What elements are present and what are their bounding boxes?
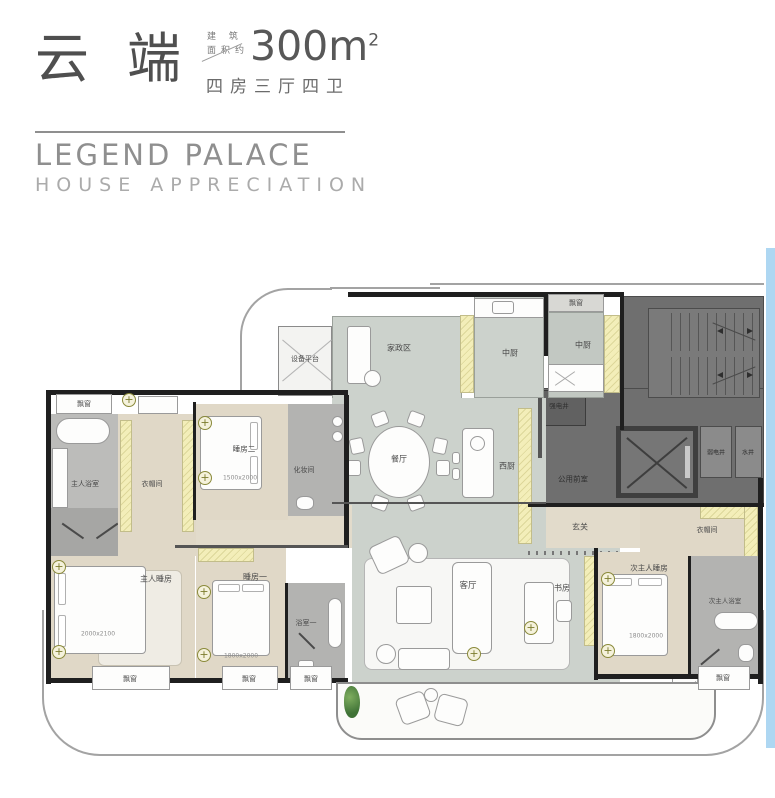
compass-symbol bbox=[198, 471, 212, 485]
wall-interior bbox=[332, 502, 546, 504]
dim-master-bedroom: 2000x2100 bbox=[81, 631, 115, 638]
label-bathroom-one: 浴室一 bbox=[296, 618, 317, 628]
label-makeup-room: 化妆间 bbox=[294, 465, 315, 475]
label-dining-room: 餐厅 bbox=[391, 454, 407, 465]
label-chinese-kitchen-left: 中厨 bbox=[502, 348, 518, 359]
brand-subtitle: HOUSE APPRECIATION bbox=[35, 174, 372, 196]
makeup-sink-2 bbox=[332, 431, 343, 442]
dim-bedroom-one: 1800x2000 bbox=[224, 653, 258, 660]
header-divider bbox=[35, 131, 345, 133]
wall-interior bbox=[175, 545, 348, 548]
wall bbox=[344, 395, 349, 548]
side-table-2 bbox=[376, 644, 396, 664]
compass-symbol bbox=[122, 393, 136, 407]
closet-column-2 bbox=[604, 315, 620, 393]
wall bbox=[620, 294, 624, 430]
compass-symbol bbox=[52, 645, 66, 659]
label-bay-window: 飘窗 bbox=[304, 674, 318, 684]
floorplan-page: 云端 建 筑 面积约 300m2 四房三厅四卫 LEGEND PALACE HO… bbox=[0, 0, 775, 798]
dim-second-master: 1800x2000 bbox=[629, 633, 663, 640]
bathtub-second-master bbox=[714, 612, 758, 630]
balcony-table bbox=[424, 688, 438, 702]
label-master-bathroom: 主人浴室 bbox=[71, 479, 99, 489]
label-housekeeping-area: 家政区 bbox=[387, 343, 411, 354]
page-title: 云端 bbox=[35, 14, 219, 93]
kitchen-sink bbox=[492, 301, 514, 314]
area-label-line1: 建 筑 bbox=[207, 30, 249, 44]
dining-chair bbox=[348, 437, 365, 456]
elevator-door bbox=[685, 446, 690, 478]
dining-chair bbox=[436, 460, 450, 476]
label-bay-window: 飘窗 bbox=[569, 298, 583, 308]
compass-symbol bbox=[52, 560, 66, 574]
label-west-kitchen: 西厨 bbox=[499, 461, 515, 472]
wall bbox=[688, 556, 691, 678]
pantry-cabinet-column bbox=[518, 408, 532, 544]
vanity-master bbox=[52, 448, 68, 508]
compass-symbol bbox=[601, 644, 615, 658]
bed-bedroom-one bbox=[212, 580, 270, 656]
makeup-toilet bbox=[296, 496, 314, 510]
stair-flight-lower bbox=[671, 357, 759, 395]
label-water-shaft: 水井 bbox=[742, 448, 754, 457]
label-equipment-platform: 设备平台 bbox=[291, 354, 319, 364]
wall bbox=[285, 583, 288, 680]
compass-symbol bbox=[467, 647, 481, 661]
balcony-plant bbox=[344, 686, 360, 718]
wardrobe-left bbox=[120, 420, 132, 532]
kitchen-counter-bottom bbox=[548, 364, 604, 392]
label-second-master-bedroom: 次主人睡房 bbox=[630, 563, 668, 574]
cloakroom-cabinet-top bbox=[138, 396, 178, 414]
compass-symbol bbox=[197, 585, 211, 599]
sofa-lounge bbox=[398, 648, 450, 670]
island-sink bbox=[470, 436, 485, 451]
wall bbox=[594, 548, 598, 680]
compass-symbol bbox=[524, 621, 538, 635]
compass-symbol bbox=[198, 416, 212, 430]
label-second-master-bathroom: 次主人浴室 bbox=[709, 595, 742, 605]
study-chair bbox=[556, 600, 572, 622]
wall bbox=[193, 402, 196, 520]
layout-description: 四房三厅四卫 bbox=[206, 72, 350, 97]
dining-chair bbox=[347, 460, 361, 476]
island-stool bbox=[452, 468, 460, 480]
staircase bbox=[648, 308, 760, 398]
bathtub-one bbox=[328, 598, 342, 648]
compass-symbol bbox=[601, 572, 615, 586]
label-cloakroom: 衣帽间 bbox=[142, 479, 163, 489]
bed-master bbox=[54, 566, 146, 654]
toilet-second-master bbox=[738, 644, 754, 662]
foyer-floor bbox=[546, 505, 640, 548]
wall-interior bbox=[538, 398, 542, 458]
makeup-sink bbox=[332, 416, 343, 427]
area-label: 建 筑 面积约 bbox=[207, 30, 249, 58]
bathtub-master bbox=[56, 418, 110, 444]
sofa-main bbox=[452, 562, 492, 654]
label-strong-electric-shaft: 强电井 bbox=[549, 400, 569, 410]
outline-top-line bbox=[330, 287, 440, 289]
closet-column-1 bbox=[460, 315, 474, 393]
label-living-room: 客厅 bbox=[459, 579, 476, 591]
area-number: 300m bbox=[250, 22, 368, 70]
island-stool bbox=[452, 452, 460, 464]
compass-symbol bbox=[197, 648, 211, 662]
wall bbox=[46, 390, 51, 684]
area-value: 300m2 bbox=[250, 22, 379, 70]
label-master-bedroom: 主人睡房 bbox=[140, 574, 172, 585]
label-weak-electric-shaft: 弱电井 bbox=[707, 448, 725, 457]
label-bay-window: 飘窗 bbox=[242, 674, 256, 684]
wall bbox=[528, 503, 764, 507]
area-superscript: 2 bbox=[368, 30, 379, 50]
label-bedroom-one: 睡房一 bbox=[243, 572, 267, 583]
second-cloakroom-wardrobe-right bbox=[744, 505, 758, 557]
washing-machine bbox=[364, 370, 381, 387]
label-bay-window: 飘窗 bbox=[123, 674, 137, 684]
label-bedroom-two: 睡房二 bbox=[233, 444, 256, 455]
wall bbox=[758, 478, 763, 684]
outline-top-line2 bbox=[430, 283, 764, 285]
label-bay-window: 飘窗 bbox=[77, 399, 91, 409]
balcony bbox=[336, 682, 716, 740]
edge-blue-strip bbox=[766, 248, 775, 748]
label-cloakroom-2: 衣帽间 bbox=[697, 525, 718, 535]
coffee-table bbox=[396, 586, 432, 624]
label-chinese-kitchen-right: 中厨 bbox=[575, 340, 591, 351]
outline-bottom-line bbox=[104, 754, 704, 756]
dim-bedroom-two: 1500x2000 bbox=[223, 475, 257, 482]
elevator-shaft bbox=[616, 426, 698, 498]
stair-flight-upper bbox=[671, 313, 759, 351]
label-study: 书房 bbox=[554, 583, 570, 594]
label-foyer: 玄关 bbox=[572, 522, 588, 533]
label-bay-window: 飘窗 bbox=[716, 673, 730, 683]
label-shared-front-room: 公用前室 bbox=[558, 474, 588, 485]
side-table bbox=[408, 543, 428, 563]
brand-title: LEGEND PALACE bbox=[35, 138, 313, 172]
bedroom-one-wardrobe bbox=[198, 548, 254, 562]
